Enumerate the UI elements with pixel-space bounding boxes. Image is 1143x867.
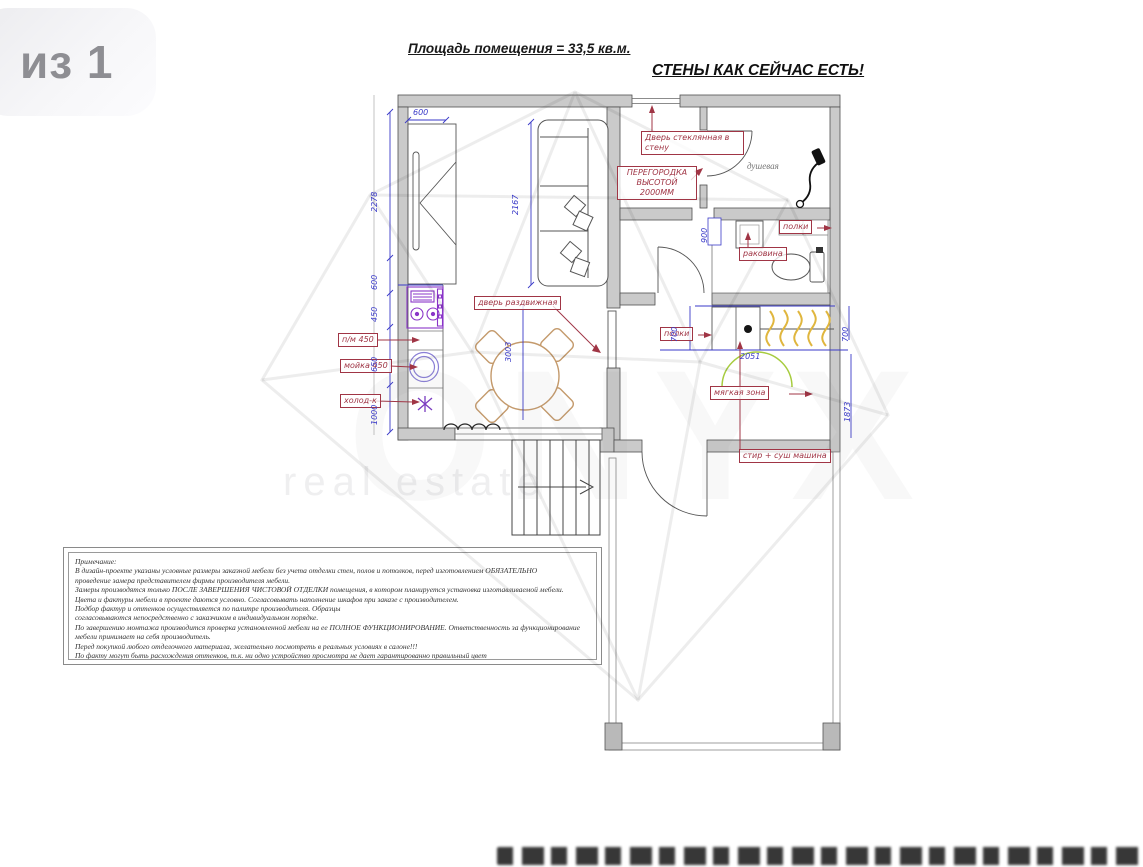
label-sink-wc: раковина	[739, 247, 787, 261]
label-dishwasher: п/м 450	[338, 333, 378, 347]
label-glass-door: Дверь стеклянная в стену	[641, 131, 744, 155]
label-washer-dryer: стир + суш машина	[739, 449, 831, 463]
walls-title: СТЕНЫ КАК СЕЙЧАС ЕСТЬ!	[652, 62, 864, 80]
dim-wc: 900	[700, 228, 710, 243]
window-band	[455, 428, 602, 440]
dim-left-d: 650	[370, 357, 380, 372]
floor-plan-drawing	[0, 0, 1143, 867]
label-sliding-door: дверь раздвижная	[474, 296, 561, 310]
dim-closet-width: 2051	[740, 352, 760, 361]
dim-closet-left: 700	[670, 327, 680, 342]
notes-text: Примечание: В дизайн-проекте указаны усл…	[68, 552, 597, 660]
clothes-hangers-icon	[766, 310, 830, 346]
wc-sink-icon	[736, 221, 763, 248]
notes-box: Примечание: В дизайн-проекте указаны усл…	[63, 547, 602, 665]
notes-line: В дизайн-проекте указаны условные размер…	[75, 566, 590, 575]
label-kitchen-sink: мойка 450	[340, 359, 392, 373]
label-partition-line1: ПЕРЕГОРОДКА	[621, 168, 693, 178]
notes-line: Перед покупкой любого отделочного матери…	[75, 642, 590, 651]
dim-top-width: 600	[413, 108, 428, 117]
room-label-shower: душевая	[747, 161, 779, 171]
notes-line: По факту могут быть расхождения оттенков…	[75, 651, 590, 660]
stove-icon	[407, 287, 443, 328]
notes-line: Примечание:	[75, 557, 590, 566]
closet-shelf-unit	[712, 307, 834, 350]
terrace-outline	[605, 452, 840, 750]
wardrobe-icon	[408, 124, 456, 284]
dim-left-c: 450	[370, 307, 380, 322]
label-partition-line2: ВЫСОТОЙ	[621, 178, 693, 188]
notes-line: согласовываются непосредственно с заказч…	[75, 613, 590, 622]
dim-left-b: 600	[370, 275, 380, 290]
entry-door-icon	[642, 452, 707, 516]
floor-plan-page: из 1 Площадь помещения = 33,5 кв.м. СТЕН…	[0, 0, 1143, 867]
dim-room-depth: 3003	[504, 342, 514, 362]
notes-line: По завершению монтажа производится прове…	[75, 623, 590, 632]
shower-head-icon	[797, 148, 826, 208]
label-glass-door-line1: Дверь стеклянная в	[645, 133, 740, 143]
notes-line: Цвета и фактуры мебели в проекте даются …	[75, 595, 590, 604]
label-soft-zone: мягкая зона	[710, 386, 769, 400]
label-shelves-wc: полки	[779, 220, 812, 234]
sofa-icon	[538, 120, 608, 286]
wc-door-icon	[658, 247, 704, 293]
dim-closet-right: 700	[841, 327, 851, 342]
notes-line: мебели принимает на себя производитель.	[75, 632, 590, 641]
area-title: Площадь помещения = 33,5 кв.м.	[408, 41, 630, 56]
notes-line: Замеры производятся только ПОСЛЕ ЗАВЕРШЕ…	[75, 585, 590, 594]
label-partition: ПЕРЕГОРОДКА ВЫСОТОЙ 2000ММ	[617, 166, 697, 200]
dim-right-depth: 1873	[843, 402, 853, 422]
label-partition-line3: 2000ММ	[621, 188, 693, 198]
sliding-door-panel	[608, 311, 616, 368]
label-glass-door-line2: стену	[645, 143, 740, 153]
dining-set-icon	[474, 327, 576, 425]
notes-line: Подбор фактур и оттенков осуществляется …	[75, 604, 590, 613]
dim-sofa: 2167	[511, 195, 521, 215]
notes-line: проведение замера представителем фирмы п…	[75, 576, 590, 585]
glass-pocket-door-icon	[632, 99, 680, 104]
cutoff-text-strip	[497, 847, 1143, 865]
dim-left-e: 1000	[370, 405, 380, 425]
dim-left-a: 2278	[370, 192, 380, 212]
fridge-snowflake-icon	[418, 396, 432, 412]
stairs-icon	[512, 440, 600, 535]
